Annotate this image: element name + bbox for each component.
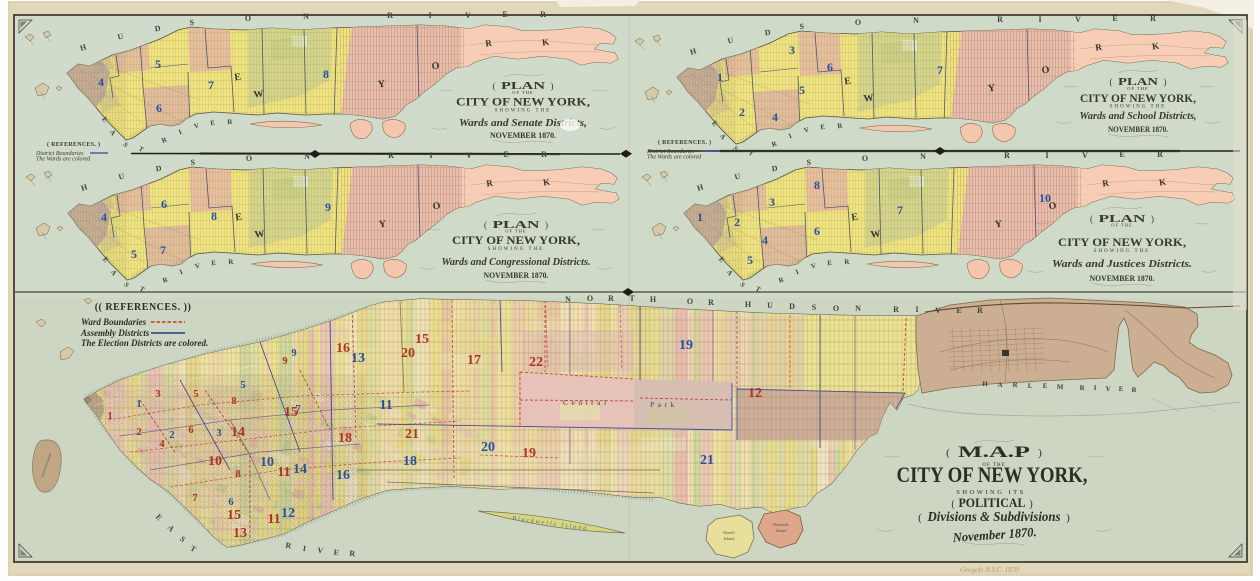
- svg-text:19: 19: [679, 338, 693, 353]
- svg-text:( REFERENCES. ): ( REFERENCES. ): [658, 139, 711, 146]
- svg-text:E: E: [1043, 382, 1048, 390]
- svg-text:( REFERENCES. ): ( REFERENCES. ): [47, 141, 100, 148]
- svg-text:11: 11: [267, 512, 280, 527]
- svg-text:1: 1: [717, 70, 723, 84]
- svg-text:7: 7: [295, 404, 300, 415]
- svg-text:6: 6: [228, 497, 233, 508]
- svg-text:R: R: [1157, 150, 1163, 159]
- svg-text:K: K: [1158, 177, 1166, 188]
- svg-text:SHOWING THE: SHOWING THE: [1094, 249, 1151, 254]
- svg-text:O: O: [862, 154, 868, 163]
- svg-text:E: E: [1119, 385, 1124, 393]
- svg-text:8: 8: [235, 469, 240, 480]
- svg-text:5: 5: [193, 389, 198, 400]
- svg-text:(: (: [946, 447, 950, 459]
- svg-text:21: 21: [405, 427, 419, 442]
- svg-text:8: 8: [231, 396, 236, 407]
- svg-text:18: 18: [338, 431, 352, 446]
- svg-text:11: 11: [379, 398, 392, 413]
- svg-text:The Wards are colored: The Wards are colored: [36, 157, 91, 163]
- svg-text:NOVEMBER 1870.: NOVEMBER 1870.: [484, 271, 549, 280]
- svg-text:CITY OF NEW YORK,: CITY OF NEW YORK,: [452, 233, 580, 247]
- svg-text:): ): [1066, 512, 1070, 524]
- svg-text:1: 1: [107, 411, 112, 422]
- svg-text:20: 20: [401, 346, 415, 361]
- svg-text:N: N: [304, 152, 310, 161]
- svg-text:10: 10: [208, 454, 222, 469]
- svg-text:R: R: [388, 151, 394, 160]
- svg-text:H: H: [982, 380, 988, 388]
- svg-text:R: R: [997, 15, 1003, 24]
- svg-text:K: K: [1151, 41, 1159, 52]
- svg-text:Wards and Congressional Distri: Wards and Congressional Districts.: [442, 257, 591, 268]
- svg-text:12: 12: [748, 386, 762, 401]
- svg-text:15: 15: [227, 508, 241, 523]
- svg-text:(( REFERENCES. )): (( REFERENCES. )): [95, 302, 192, 313]
- svg-text:5: 5: [240, 380, 245, 391]
- svg-text:12: 12: [281, 506, 295, 521]
- svg-text:M: M: [1057, 383, 1064, 391]
- svg-text:N: N: [913, 16, 919, 25]
- svg-text:V: V: [1105, 385, 1110, 393]
- svg-text:SHOWING THE: SHOWING THE: [488, 247, 545, 252]
- svg-text:2: 2: [734, 215, 740, 229]
- svg-text:N: N: [303, 12, 309, 21]
- svg-text:3: 3: [216, 428, 221, 439]
- svg-text:): ): [1151, 214, 1154, 224]
- svg-text:13: 13: [233, 526, 247, 541]
- svg-text:8: 8: [211, 209, 217, 223]
- svg-text:S: S: [812, 303, 817, 312]
- svg-text:Wards and Justices Districts.: Wards and Justices Districts.: [1052, 259, 1192, 270]
- svg-text:5: 5: [799, 83, 805, 97]
- svg-text:O: O: [587, 294, 593, 303]
- svg-text:Randalls: Randalls: [773, 522, 789, 527]
- svg-text:2: 2: [136, 427, 141, 438]
- svg-text:9: 9: [282, 356, 287, 367]
- svg-text:3: 3: [769, 195, 775, 209]
- svg-text:V: V: [1082, 151, 1088, 160]
- svg-text:The Wards are colored: The Wards are colored: [647, 155, 702, 161]
- svg-text:M.A.P: M.A.P: [958, 444, 1030, 461]
- svg-text:16: 16: [336, 468, 350, 483]
- svg-text:D: D: [789, 302, 795, 311]
- svg-text:4: 4: [159, 439, 165, 450]
- svg-text:N: N: [920, 152, 926, 161]
- svg-text:17: 17: [467, 353, 481, 368]
- svg-text:V: V: [465, 11, 471, 20]
- svg-text:6: 6: [827, 60, 833, 74]
- svg-text:The Election Districts are col: The Election Districts are colored.: [81, 338, 208, 348]
- svg-text:Divisions & Subdivisions: Divisions & Subdivisions: [927, 510, 1061, 525]
- svg-text:7: 7: [937, 63, 943, 77]
- svg-text:4: 4: [762, 233, 768, 247]
- svg-text:N: N: [855, 304, 861, 313]
- svg-text:2: 2: [739, 105, 745, 119]
- svg-text:SHOWING THE: SHOWING THE: [1110, 105, 1167, 110]
- svg-text:W: W: [254, 228, 265, 240]
- svg-text:6: 6: [161, 197, 167, 211]
- svg-text:R: R: [893, 305, 899, 314]
- svg-text:O: O: [855, 18, 861, 27]
- svg-text:): ): [1038, 447, 1042, 459]
- svg-text:5: 5: [155, 57, 161, 71]
- svg-text:R: R: [387, 11, 393, 20]
- svg-text:3: 3: [155, 389, 160, 400]
- svg-text:1: 1: [697, 210, 703, 224]
- svg-text:5: 5: [131, 247, 137, 261]
- svg-text:(: (: [493, 81, 496, 91]
- svg-text:): ): [545, 220, 548, 230]
- svg-text:O: O: [246, 154, 252, 163]
- svg-text:20: 20: [481, 440, 495, 455]
- svg-text:Geogofs N.Y.C. 1870: Geogofs N.Y.C. 1870: [960, 566, 1019, 574]
- svg-text:I: I: [915, 305, 918, 314]
- svg-text:6: 6: [188, 425, 193, 436]
- svg-text:4: 4: [772, 110, 778, 124]
- svg-text:E: E: [956, 306, 961, 315]
- svg-text:13: 13: [351, 351, 365, 366]
- svg-text:E: E: [1112, 14, 1117, 23]
- svg-text:W: W: [870, 228, 881, 240]
- svg-text:R: R: [1004, 151, 1010, 160]
- svg-text:I: I: [1038, 15, 1041, 24]
- svg-text:L: L: [1028, 382, 1033, 390]
- svg-text:Park: Park: [650, 400, 678, 409]
- svg-text:OF THE: OF THE: [1111, 223, 1133, 228]
- svg-text:R: R: [349, 549, 356, 559]
- svg-text:Ward Boundaries: Ward Boundaries: [81, 317, 147, 327]
- svg-text:E: E: [1119, 150, 1124, 159]
- svg-text:2: 2: [169, 430, 174, 441]
- svg-text:6: 6: [156, 101, 162, 115]
- svg-text:11: 11: [277, 465, 290, 480]
- svg-text:): ): [1029, 499, 1032, 510]
- svg-text:V: V: [1075, 15, 1081, 24]
- svg-text:(: (: [484, 220, 487, 230]
- svg-text:8: 8: [814, 178, 820, 192]
- svg-text:8: 8: [323, 67, 329, 81]
- svg-text:R: R: [1150, 14, 1156, 23]
- svg-text:15: 15: [415, 332, 429, 347]
- svg-text:9: 9: [325, 200, 331, 214]
- svg-text:22: 22: [529, 355, 543, 370]
- svg-text:7: 7: [192, 493, 197, 504]
- svg-text:I: I: [428, 11, 431, 20]
- svg-text:10: 10: [1039, 191, 1051, 205]
- svg-text:3: 3: [789, 43, 795, 57]
- svg-text:1: 1: [136, 399, 141, 410]
- svg-text:CITY OF NEW YORK,: CITY OF NEW YORK,: [897, 462, 1088, 487]
- svg-text:V: V: [466, 151, 472, 160]
- svg-text:(: (: [918, 512, 922, 524]
- svg-text:Ward's: Ward's: [723, 530, 735, 535]
- svg-text:N: N: [565, 295, 571, 304]
- svg-text:CITY OF NEW YORK,: CITY OF NEW YORK,: [456, 95, 590, 109]
- svg-text:14: 14: [293, 462, 307, 477]
- svg-text:T: T: [629, 294, 635, 303]
- svg-text:H: H: [745, 300, 752, 309]
- svg-text:6: 6: [814, 224, 820, 238]
- svg-text:7: 7: [897, 203, 903, 217]
- svg-text:9: 9: [291, 348, 296, 359]
- svg-text:U: U: [767, 301, 773, 310]
- svg-text:I: I: [429, 151, 432, 160]
- svg-text:18: 18: [403, 454, 417, 469]
- svg-text:H: H: [650, 295, 657, 304]
- svg-text:O: O: [245, 14, 251, 23]
- svg-text:R: R: [608, 294, 614, 303]
- svg-text:): ): [1164, 77, 1167, 87]
- svg-text:V: V: [935, 306, 941, 315]
- svg-text:K: K: [541, 37, 549, 48]
- svg-text:SHOWING THE: SHOWING THE: [495, 109, 552, 114]
- svg-text:R: R: [541, 150, 547, 159]
- svg-text:19: 19: [522, 446, 536, 461]
- svg-text:7: 7: [208, 78, 214, 92]
- svg-text:7: 7: [160, 243, 166, 257]
- svg-text:W: W: [863, 92, 874, 104]
- svg-text:Wards and School Districts,: Wards and School Districts,: [1080, 111, 1197, 122]
- svg-text:16: 16: [336, 341, 350, 356]
- svg-text:14: 14: [231, 425, 245, 440]
- svg-text:O: O: [687, 297, 693, 306]
- svg-text:E: E: [502, 10, 507, 19]
- svg-text:Island: Island: [776, 528, 788, 533]
- svg-text:CITY OF NEW YORK,: CITY OF NEW YORK,: [1058, 235, 1186, 249]
- svg-text:O: O: [833, 304, 839, 313]
- svg-text:21: 21: [700, 453, 714, 468]
- svg-text:(: (: [1090, 214, 1093, 224]
- svg-text:K: K: [542, 177, 550, 188]
- svg-text:Central: Central: [563, 398, 610, 407]
- svg-text:NOVEMBER 1870.: NOVEMBER 1870.: [1090, 274, 1155, 283]
- svg-text:NOVEMBER 1870.: NOVEMBER 1870.: [1108, 125, 1168, 134]
- svg-text:R: R: [540, 10, 546, 19]
- svg-text:I: I: [1045, 151, 1048, 160]
- svg-text:): ): [551, 81, 554, 91]
- svg-text:4: 4: [101, 210, 107, 224]
- svg-text:10: 10: [260, 455, 274, 470]
- svg-text:5: 5: [747, 253, 753, 267]
- svg-text:POLITICAL: POLITICAL: [959, 495, 1026, 510]
- svg-text:R: R: [708, 298, 714, 307]
- svg-text:E: E: [503, 150, 508, 159]
- svg-text:Island: Island: [724, 536, 736, 541]
- svg-text:CITY OF NEW YORK,: CITY OF NEW YORK,: [1080, 91, 1196, 105]
- svg-text:NOVEMBER 1870.: NOVEMBER 1870.: [490, 131, 556, 140]
- svg-text:A: A: [997, 381, 1002, 389]
- svg-text:W: W: [253, 88, 264, 100]
- svg-text:(: (: [1110, 77, 1113, 87]
- svg-text:4: 4: [98, 75, 104, 89]
- svg-text:Assembly Districts: Assembly Districts: [80, 328, 150, 338]
- svg-text:R: R: [977, 306, 983, 315]
